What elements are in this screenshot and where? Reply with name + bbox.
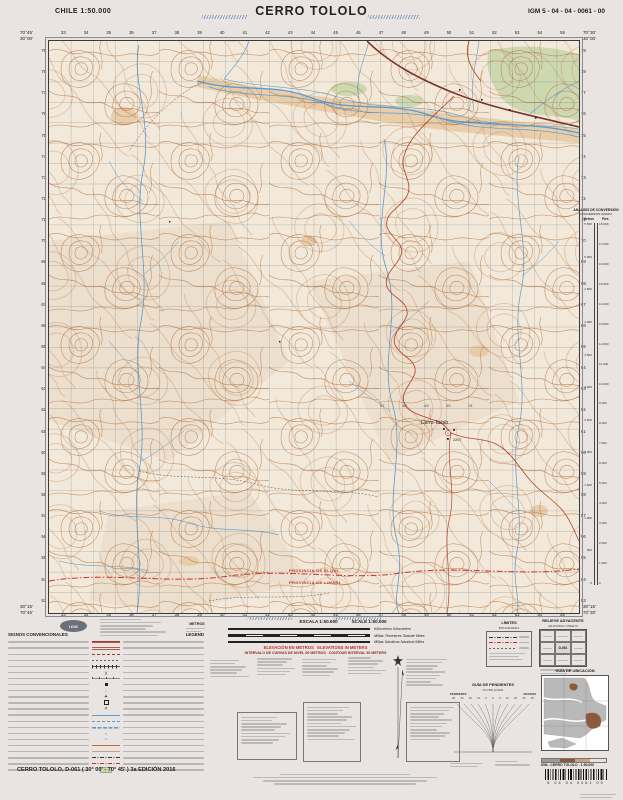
grid-label: 4.000 bbox=[584, 321, 592, 324]
meters-scale: 5.5005.0004.5004.0003.5003.0002.5002.000… bbox=[572, 223, 592, 585]
corner-coordinate: 30°15'70°45' bbox=[20, 604, 33, 615]
grid-label: 72 bbox=[581, 197, 586, 201]
grid-label: 3.000 bbox=[584, 386, 592, 389]
grid-label: 73 bbox=[581, 176, 586, 180]
grid-label: 67 bbox=[41, 303, 46, 307]
ubicacion-title: GUÍA DE UBICACIÓN bbox=[541, 669, 609, 674]
grid-label: 55 bbox=[560, 31, 565, 35]
legend-title-es: SIGNOS CONVENCIONALES bbox=[8, 632, 68, 637]
grid-label: 75 bbox=[41, 134, 46, 138]
grid-label: 2.000 bbox=[599, 542, 607, 545]
grid-label: 69 bbox=[41, 260, 46, 264]
grid-label: 70 bbox=[41, 239, 46, 243]
grid-label: 66 bbox=[41, 324, 46, 328]
conversion-graph: ANÁLISIS DE CONVERSIÓN CONVERSION GRAPH … bbox=[572, 208, 620, 585]
grid-label: 10.000 bbox=[599, 383, 608, 386]
road-paved-icon bbox=[92, 640, 120, 645]
school-icon bbox=[92, 700, 120, 705]
grid-label: 5.000 bbox=[584, 256, 592, 259]
grid-label: 78 bbox=[581, 70, 586, 74]
adjoining-sheet-cell bbox=[540, 642, 555, 654]
grid-northings-left: 7978777675747372717069686766656463626160… bbox=[34, 40, 46, 612]
grid-label: 33 bbox=[61, 31, 66, 35]
road-dirt-icon bbox=[92, 652, 120, 657]
elevation-note: ELEVACIÓN EN METROS ELEVATIONS IN METERS bbox=[208, 645, 423, 650]
adjoining-sheet-cell bbox=[540, 630, 555, 642]
scale-bars: ESCALA 1:50.000 SCALE 1:50.000 Kilómetro… bbox=[228, 619, 458, 645]
scale-bar bbox=[228, 628, 370, 631]
grid-eastings-top: 3334353637383940414243444546474849505152… bbox=[48, 31, 578, 35]
grid-label: 2.500 bbox=[584, 419, 592, 422]
grid-label: 78 bbox=[41, 70, 46, 74]
adjoining-sheet-cell bbox=[555, 654, 570, 666]
scale-bar bbox=[228, 634, 370, 637]
grid-label: 74 bbox=[581, 155, 586, 159]
grid-label: 5.500 bbox=[584, 223, 592, 226]
grid-label: 37 bbox=[152, 31, 157, 35]
grid-label: 52 bbox=[492, 31, 497, 35]
grid-label: 1.000 bbox=[584, 517, 592, 520]
grid-label: 53 bbox=[515, 31, 520, 35]
notes-column bbox=[210, 658, 298, 678]
grid-label: 49 bbox=[424, 31, 429, 35]
barcode-digits: 5 04 04 0061 00 bbox=[545, 781, 607, 785]
grid-label: 1.500 bbox=[584, 484, 592, 487]
datum-notes bbox=[302, 657, 388, 677]
feet-scale: 18.00017.00016.00015.00014.00013.00012.0… bbox=[599, 223, 619, 585]
grid-label: 0 bbox=[599, 582, 601, 585]
map-sheet: CHILE 1:50.000 CERRO TOLOLO IGM 5 - 04 -… bbox=[0, 0, 623, 800]
topographic-map: Cerro Tololo 2207 PROVINCIA DE ELQUI PRO… bbox=[48, 40, 580, 614]
location-map bbox=[541, 675, 609, 751]
grid-label: 17.000 bbox=[599, 243, 608, 246]
grid-label: 60 bbox=[41, 451, 46, 455]
note-box-a bbox=[237, 712, 297, 760]
limites-box bbox=[486, 631, 532, 667]
stream-intermittent-icon bbox=[92, 719, 120, 724]
bridge-icon bbox=[92, 670, 120, 675]
grid-label: 500 bbox=[587, 549, 592, 552]
grid-label: 53 bbox=[41, 599, 46, 603]
comuna-boundary-symbol bbox=[489, 646, 517, 651]
intl-boundary-symbol bbox=[489, 635, 517, 640]
adjoining-sheet-cell: D-061 bbox=[555, 642, 570, 654]
province-label-south: PROVINCIA DE LIMARÍ bbox=[289, 580, 341, 585]
barcode bbox=[545, 769, 607, 780]
adjoining-sheet-cell bbox=[571, 642, 586, 654]
grid-label: 73 bbox=[41, 176, 46, 180]
grid-label: 63 bbox=[41, 387, 46, 391]
grid-label: 54 bbox=[537, 31, 542, 35]
grid-label: 56 bbox=[41, 535, 46, 539]
grid-label: 77 bbox=[581, 91, 586, 95]
grid-label: 48 bbox=[401, 31, 406, 35]
declination-diagram bbox=[392, 654, 406, 771]
grid-label: 2.000 bbox=[584, 451, 592, 454]
grid-label: 57 bbox=[41, 514, 46, 518]
grid-label: 38 bbox=[174, 31, 179, 35]
scale-bar bbox=[228, 641, 370, 644]
colorbar-tan bbox=[575, 759, 590, 762]
grid-label: 35 bbox=[106, 31, 111, 35]
grid-label: 8.000 bbox=[599, 422, 607, 425]
interior-grid-number: 51 bbox=[468, 403, 473, 408]
grid-label: 12.000 bbox=[599, 343, 608, 346]
grid-label: 13.000 bbox=[599, 323, 608, 326]
grid-label: 68 bbox=[41, 282, 46, 286]
grid-label: 0 bbox=[590, 582, 592, 585]
canal-icon bbox=[92, 725, 120, 730]
grid-label: 75 bbox=[581, 134, 586, 138]
road-gravel-icon bbox=[92, 646, 120, 651]
grid-label: 79 bbox=[581, 49, 586, 53]
igm-logo: IGM bbox=[60, 620, 87, 632]
colorbar-gray bbox=[542, 759, 560, 762]
contour-icon bbox=[92, 749, 120, 754]
interior-grid-number: 49 bbox=[424, 403, 429, 408]
railway-icon bbox=[92, 664, 120, 669]
adjoining-sheet-cell bbox=[571, 654, 586, 666]
contour-interval-note: INTERVALO DE CURVAS DE NIVEL 50 METROS C… bbox=[208, 651, 423, 655]
boundary-prov-icon bbox=[92, 761, 120, 766]
church-icon bbox=[92, 694, 120, 699]
grid-label: 4.000 bbox=[599, 502, 607, 505]
grid-label: 64 bbox=[41, 366, 46, 370]
grid-label: 9.000 bbox=[599, 402, 607, 405]
blue-annotation bbox=[202, 15, 249, 19]
grid-label: 36 bbox=[129, 31, 134, 35]
grid-label: 11.000 bbox=[599, 363, 608, 366]
map-canvas: Cerro Tololo 2207 PROVINCIA DE ELQUI PRO… bbox=[49, 41, 579, 613]
limites-subtitle: BOUNDARIES bbox=[486, 626, 532, 630]
grid-label: 58 bbox=[41, 493, 46, 497]
corner-coordinate: 70°45'30°00' bbox=[20, 30, 33, 41]
grid-label: 16.000 bbox=[599, 263, 608, 266]
conversion-right-unit: Pies bbox=[602, 217, 609, 221]
grid-label: 54 bbox=[41, 578, 46, 582]
conversion-ruler: 5.5005.0004.5004.0003.5003.0002.5002.000… bbox=[572, 223, 620, 585]
observatory-symbol bbox=[446, 431, 451, 436]
print-note bbox=[580, 792, 618, 800]
grid-label: 6.000 bbox=[599, 462, 607, 465]
grid-label: 34 bbox=[84, 31, 89, 35]
contour-index-icon bbox=[92, 743, 120, 748]
grid-label: 14.000 bbox=[599, 303, 608, 306]
grid-label: 43 bbox=[288, 31, 293, 35]
grid-label: 71 bbox=[41, 218, 46, 222]
grid-label: 74 bbox=[41, 155, 46, 159]
escala-label: ESCALA 1:50.000 bbox=[299, 619, 337, 624]
grid-label: 5.000 bbox=[599, 482, 607, 485]
grid-label: 50 bbox=[447, 31, 452, 35]
grid-label: 39 bbox=[197, 31, 202, 35]
grid-label: 42 bbox=[265, 31, 270, 35]
grid-label: 79 bbox=[41, 49, 46, 53]
grid-label: 62 bbox=[41, 408, 46, 412]
grid-label: 15.000 bbox=[599, 283, 608, 286]
grid-label: 47 bbox=[379, 31, 384, 35]
sheet-code: IGM 5 - 04 - 04 - 0061 - 00 bbox=[528, 8, 605, 15]
stream-icon bbox=[92, 713, 120, 718]
grid-label: 76 bbox=[41, 112, 46, 116]
grid-label: 76 bbox=[581, 112, 586, 116]
legend-title-en: LEGEND bbox=[186, 632, 204, 637]
scale-bar-unit-label: Millas Náuticas Nautical Miles bbox=[374, 640, 424, 644]
grid-label: 45 bbox=[333, 31, 338, 35]
location-guide-section: GUÍA DE UBICACIÓN bbox=[541, 669, 609, 763]
prov-boundary-symbol bbox=[489, 640, 517, 645]
legend: SIGNOS CONVENCIONALES LEGEND bbox=[8, 632, 204, 773]
grid-label: 40 bbox=[220, 31, 225, 35]
colorbar-light bbox=[590, 759, 606, 762]
grid-label: 55 bbox=[41, 556, 46, 560]
spring-icon bbox=[92, 737, 120, 742]
footer-sheet-line: CERRO TOLOLO, D-061 ( 30° 00' - 70° 45' … bbox=[17, 767, 175, 773]
grid-label: 7.000 bbox=[599, 442, 607, 445]
blue-annotation bbox=[368, 15, 421, 19]
grid-label: 1.000 bbox=[599, 562, 607, 565]
adjoining-sheets-grid: D-061 bbox=[539, 629, 587, 667]
notes-column-right bbox=[406, 657, 448, 687]
grid-label: 51 bbox=[469, 31, 474, 35]
grid-label: 72 bbox=[41, 197, 46, 201]
mine-icon bbox=[92, 707, 120, 712]
interior-grid-number: 50 bbox=[446, 403, 451, 408]
conversion-left-unit: Metros bbox=[583, 217, 593, 221]
grid-label: 18.000 bbox=[599, 223, 608, 226]
scale-bar-unit-label: Kilómetros Kilometers bbox=[374, 627, 411, 631]
well-icon bbox=[92, 731, 120, 736]
adjoining-sheet-cell bbox=[571, 630, 586, 642]
note-box-b bbox=[303, 702, 361, 762]
grid-label: 53 bbox=[581, 599, 586, 603]
conversion-subtitle: CONVERSION GRAPH bbox=[572, 212, 620, 216]
peak-label: Cerro Tololo bbox=[421, 420, 448, 426]
grid-label: 65 bbox=[41, 345, 46, 349]
grid-label: 59 bbox=[41, 472, 46, 476]
slope-fan bbox=[450, 700, 536, 756]
grid-label: 3.000 bbox=[599, 522, 607, 525]
grid-label: 46 bbox=[356, 31, 361, 35]
colorbar-brown bbox=[560, 759, 575, 762]
igm-product-line: IGM - CERRO TOLOLO - 1:50.000 bbox=[541, 763, 611, 767]
trail-icon bbox=[92, 658, 120, 663]
interior-grid-number: 47 bbox=[380, 403, 385, 408]
relieve-subtitle: ADJOINING SHEETS bbox=[538, 624, 588, 628]
slope-guide-section: GUÍA DE PENDIENTES SLOPE GUIDE PENDIENTE… bbox=[450, 683, 536, 768]
grid-label: 3.500 bbox=[584, 354, 592, 357]
ruin-icon bbox=[92, 688, 120, 693]
peak-elevation: 2207 bbox=[453, 438, 461, 442]
scale-bar-unit-label: Millas Terrestres Statute Miles bbox=[374, 634, 425, 638]
grid-label: 4.500 bbox=[584, 288, 592, 291]
grid-label: 41 bbox=[243, 31, 248, 35]
power-line-icon bbox=[92, 676, 120, 681]
true-north-star bbox=[393, 655, 403, 666]
footer-fine-print bbox=[250, 772, 440, 786]
province-label-north: PROVINCIA DE ELQUI bbox=[289, 568, 338, 573]
boundary-intl-icon bbox=[92, 755, 120, 760]
adjoining-sheet-cell bbox=[555, 630, 570, 642]
grid-label: 44 bbox=[311, 31, 316, 35]
interior-grid-number: 48 bbox=[402, 403, 407, 408]
grid-label: 77 bbox=[41, 91, 46, 95]
boundaries-section: LÍMITES BOUNDARIES bbox=[486, 621, 532, 667]
pendientes-footnote bbox=[450, 761, 534, 768]
grid-label: 61 bbox=[41, 430, 46, 434]
adjoining-sheet-cell bbox=[540, 654, 555, 666]
building-icon bbox=[92, 682, 120, 687]
scale-label: SCALE 1:50.000 bbox=[352, 619, 387, 624]
